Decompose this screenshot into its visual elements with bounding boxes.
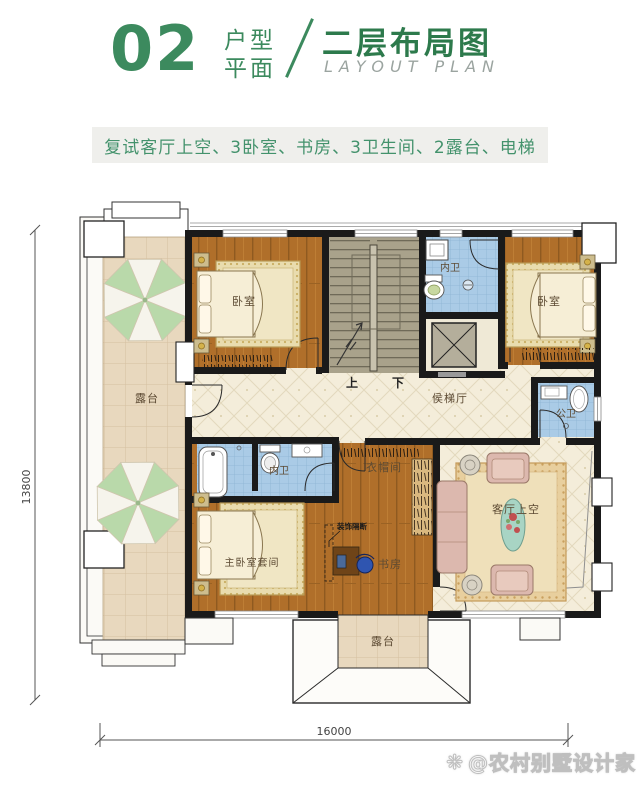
side-table (460, 455, 480, 475)
dimension-left: 13800 (20, 225, 40, 705)
side-table (462, 575, 482, 595)
terrace-left: 露台 (80, 202, 202, 666)
label-bath-mid: 内卫 (269, 464, 289, 477)
label-partition-note: 装饰隔断 (336, 521, 367, 531)
label-study: 书房 (378, 558, 402, 571)
unit-plan-label: 户型 平面 (224, 27, 276, 83)
wardrobe (202, 355, 274, 367)
floor-plan: 露台 (0, 195, 640, 783)
pillow (583, 277, 595, 303)
section-number: 02 (110, 12, 200, 85)
bedroom-tr: 卧室 (506, 255, 596, 360)
label-terrace-bottom: 露台 (371, 634, 395, 648)
wardrobe (520, 348, 594, 360)
label-bath-top: 内卫 (440, 261, 460, 274)
floor-plan-drawing: 露台 (0, 195, 640, 783)
page-header: 02 户型 平面 二层布局图 LAYOUT PLAN (0, 0, 640, 125)
dim-bottom-value: 16000 (317, 725, 352, 738)
label-living-void: 客厅上空 (492, 502, 540, 516)
watermark-logo-icon: ❋ (446, 750, 464, 774)
label-stair-down: 下 (392, 376, 404, 390)
label-cloakroom: 衣帽间 (366, 460, 402, 474)
desk-chair (357, 557, 373, 573)
unit-plan-line1: 户型 (224, 27, 276, 55)
staircase (329, 237, 419, 373)
unit-plan-line2: 平面 (224, 55, 276, 83)
monitor (337, 555, 346, 568)
dim-left-value: 13800 (20, 470, 33, 505)
label-master-suite: 主卧室套间 (225, 556, 280, 569)
label-terrace-left: 露台 (135, 391, 159, 405)
label-stair-up: 上 (346, 375, 358, 390)
sink (426, 240, 448, 260)
watermark-text: @农村别墅设计家 (468, 747, 636, 776)
bay-window-left (176, 342, 194, 382)
elevator-door (438, 372, 466, 377)
elevator (426, 319, 498, 371)
sink (292, 444, 322, 457)
sofa (437, 481, 467, 573)
pillow (199, 547, 211, 575)
label-bedroom-tr: 卧室 (537, 294, 561, 308)
label-lift-hall: 侯梯厅 (432, 391, 468, 405)
divider-slash (285, 18, 314, 78)
pillow (583, 305, 595, 331)
dimension-bottom: 16000 (95, 723, 573, 747)
feature-summary-bar: 复试客厅上空、3卧室、书房、3卫生间、2露台、电梯 (92, 127, 548, 163)
label-bedroom-tl: 卧室 (232, 294, 256, 308)
label-bath-public: 公卫 (556, 409, 576, 420)
pillow (199, 305, 211, 333)
terrace-bottom: 露台 (293, 615, 470, 703)
wardrobe (341, 446, 419, 457)
page-subtitle: LAYOUT PLAN (324, 57, 500, 76)
watermark: ❋ @农村别墅设计家 (446, 747, 636, 776)
pillow (199, 275, 211, 303)
pillow (199, 515, 211, 543)
eave-lines (190, 223, 601, 227)
terrace-post (84, 221, 124, 257)
